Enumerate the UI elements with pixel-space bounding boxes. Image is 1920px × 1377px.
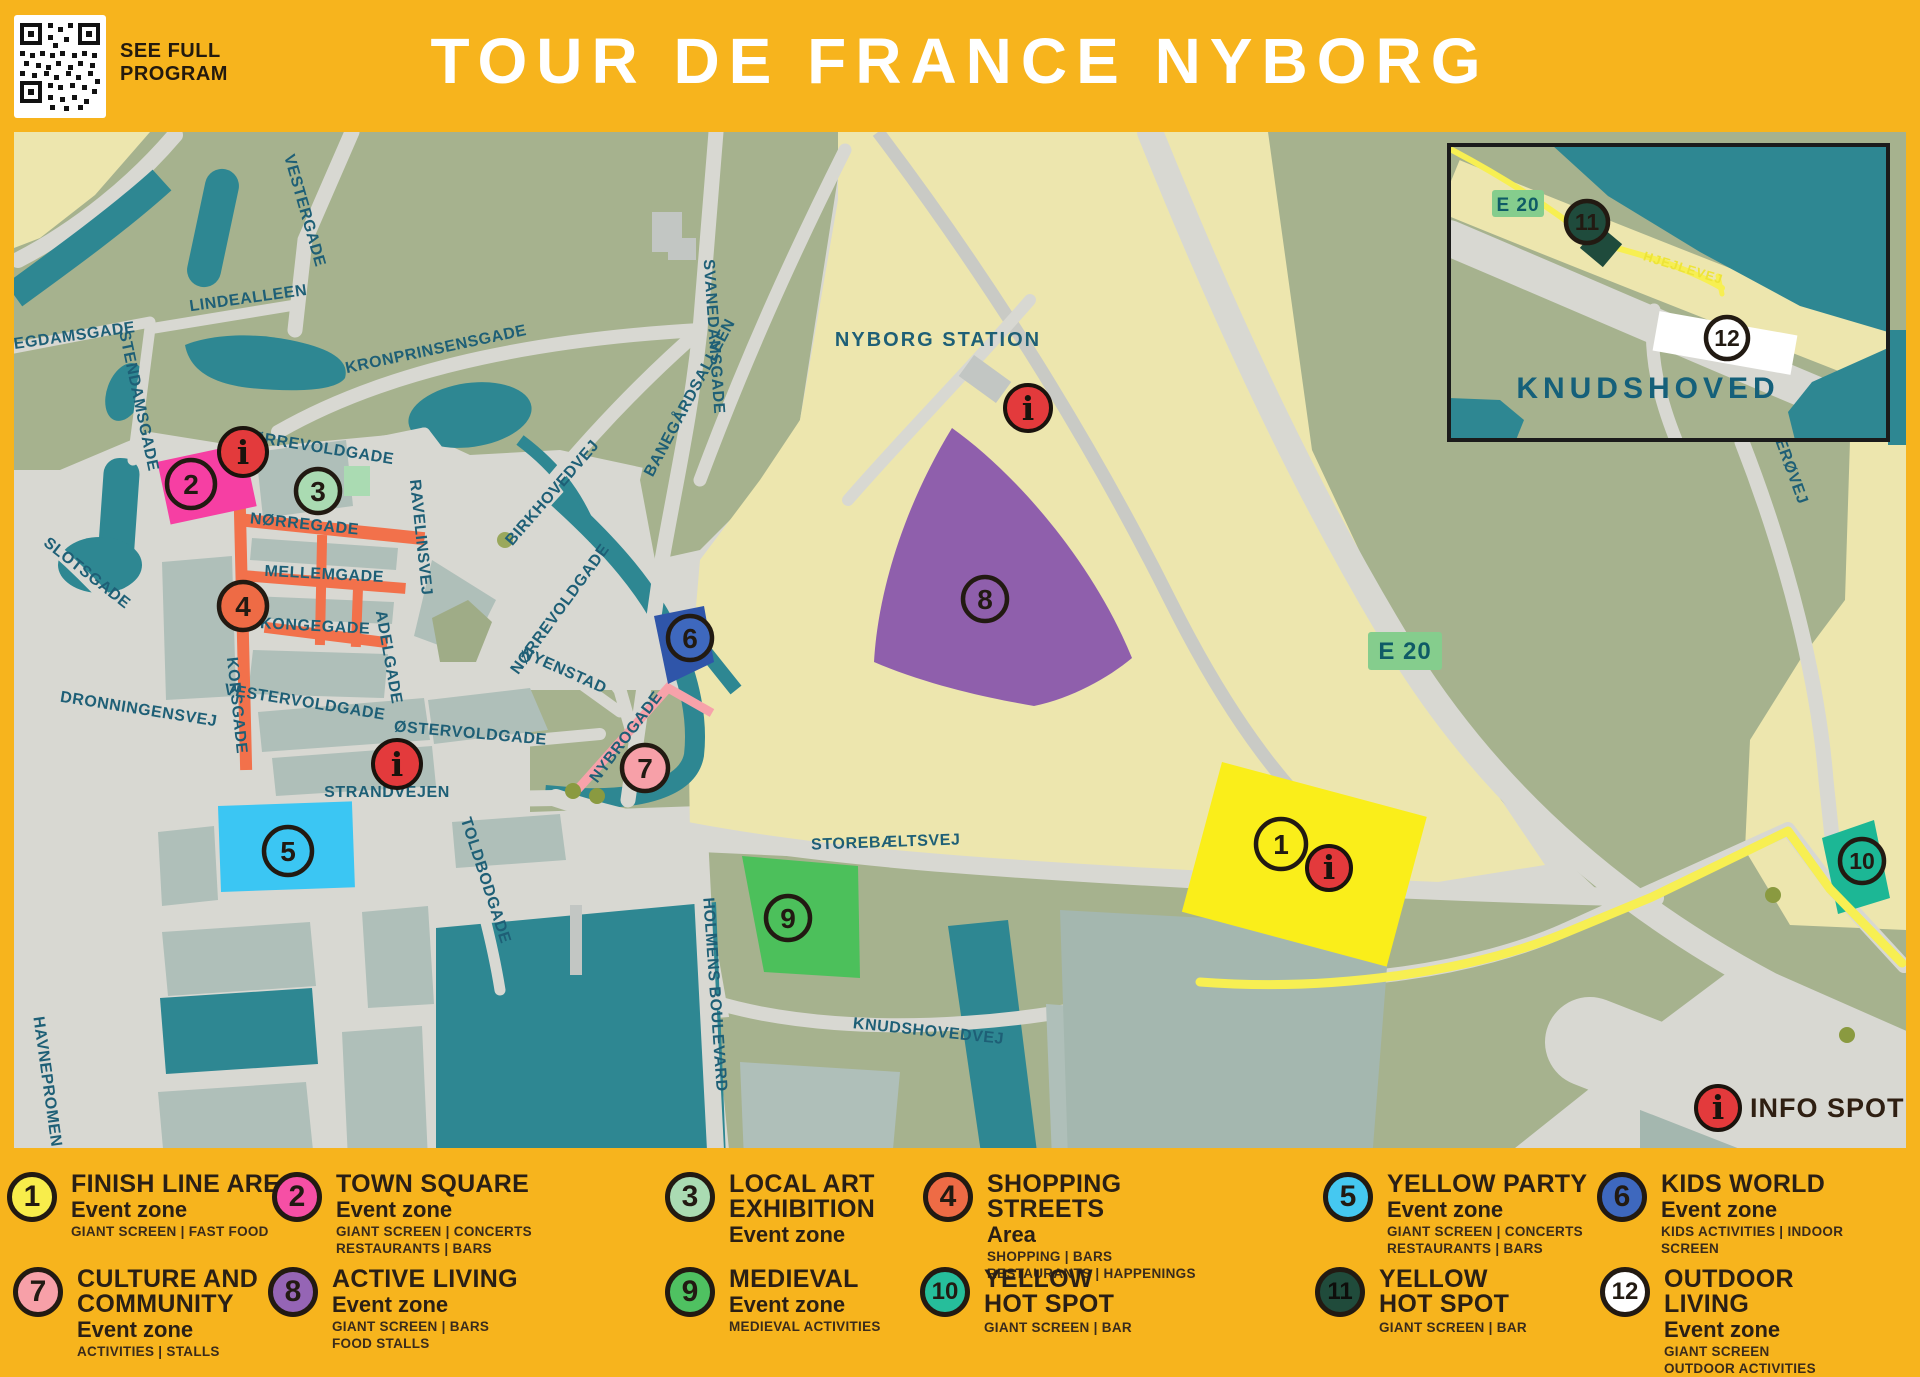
svg-text:3: 3 [310,476,326,507]
svg-text:12: 12 [1714,325,1740,351]
legend-circle-9: 9 [665,1267,715,1317]
e20-badge: E 20 [1368,632,1442,670]
legend-circle-8: 8 [268,1267,318,1317]
svg-text:11: 11 [1575,209,1600,235]
place-label-nyborg-station: NYBORG STATION [835,329,1041,351]
map-marker-9: 9 [766,896,810,940]
header-bar: SEE FULL PROGRAM TOUR DE FRANCE NYBORG [0,0,1920,132]
svg-text:5: 5 [280,836,296,867]
svg-text:i: i [237,433,250,472]
svg-text:10: 10 [1849,848,1875,874]
svg-text:i: i [1712,1088,1725,1127]
info-spot-icon: i [219,428,267,476]
legend-circle-3: 3 [665,1172,715,1222]
svg-text:E 20: E 20 [1378,638,1431,665]
legend-circle-5: 5 [1323,1172,1373,1222]
place-label-knudshoved: KNUDSHOVED [1516,372,1779,405]
zone-3-local-art [344,466,370,496]
legend-circle-6: 6 [1597,1172,1647,1222]
inset-map-knudshoved: E 20 11 HJEJLEVEJ 12 KNUDSHOVED [1449,145,1892,440]
svg-text:INFO SPOT: INFO SPOT [1750,1093,1905,1123]
legend-circle-1: 1 [7,1172,57,1222]
svg-text:1: 1 [1273,829,1289,860]
svg-text:6: 6 [682,623,698,654]
map-marker-6: 6 [668,616,712,660]
map-marker-5: 5 [264,827,312,875]
map-marker-12: 12 [1706,317,1748,359]
svg-text:8: 8 [977,584,993,615]
svg-text:4: 4 [235,591,251,622]
svg-text:i: i [391,745,404,784]
page-title: TOUR DE FRANCE NYBORG [0,24,1920,98]
svg-text:i: i [1323,848,1336,887]
legend-circle-2: 2 [272,1172,322,1222]
map-marker-1: 1 [1256,819,1306,869]
legend-circle-10: 10 [920,1267,970,1317]
street-label-norregade: NØRREGADE [249,510,360,538]
map-marker-3: 3 [296,469,340,513]
map-marker-2: 2 [167,460,215,508]
legend-item-8: 8ACTIVE LIVINGEvent zoneGIANT SCREEN | B… [268,1267,518,1352]
legend-item-7: 7CULTURE AND COMMUNITYEvent zoneACTIVITI… [13,1267,258,1361]
legend-item-2: 2TOWN SQUAREEvent zoneGIANT SCREEN | CON… [272,1172,532,1257]
legend-item-6: 6KIDS WORLDEvent zoneKIDS ACTIVITIES | I… [1597,1172,1843,1257]
map-marker-7: 7 [622,745,668,791]
svg-text:2: 2 [183,469,199,500]
event-map: E 20 VESTERGADE LINDEALLEEN BLEGDAMSGADE… [14,132,1906,1148]
info-spot-icon: i [1005,385,1051,431]
info-spot-icon: i [1307,846,1351,890]
legend-circle-7: 7 [13,1267,63,1317]
legend-item-5: 5YELLOW PARTYEvent zoneGIANT SCREEN | CO… [1323,1172,1587,1257]
legend-item-3: 3LOCAL ART EXHIBITIONEvent zone [665,1172,875,1246]
legend-item-12: 12OUTDOOR LIVINGEvent zoneGIANT SCREEN O… [1600,1267,1816,1377]
map-marker-11: 11 [1566,201,1608,243]
legend-item-10: 10YELLOW HOT SPOTGIANT SCREEN | BAR [920,1267,1132,1336]
legend-circle-11: 11 [1315,1267,1365,1317]
map-marker-10: 10 [1840,839,1884,883]
legend-circle-12: 12 [1600,1267,1650,1317]
svg-text:i: i [1022,389,1035,428]
map-marker-8: 8 [963,577,1007,621]
legend-item-9: 9MEDIEVALEvent zoneMEDIEVAL ACTIVITIES [665,1267,881,1336]
svg-text:9: 9 [780,903,796,934]
legend-item-11: 11YELLOW HOT SPOTGIANT SCREEN | BAR [1315,1267,1527,1336]
legend-item-1: 1FINISH LINE AREAEvent zoneGIANT SCREEN … [7,1172,299,1241]
svg-text:7: 7 [637,753,653,784]
legend-circle-4: 4 [923,1172,973,1222]
info-spot-icon: i [373,740,421,788]
street-label-havnepromenade: HAVNEPROMENADE [29,1015,69,1148]
map-marker-4: 4 [219,582,267,630]
inset-e20-badge: E 20 [1496,195,1539,216]
